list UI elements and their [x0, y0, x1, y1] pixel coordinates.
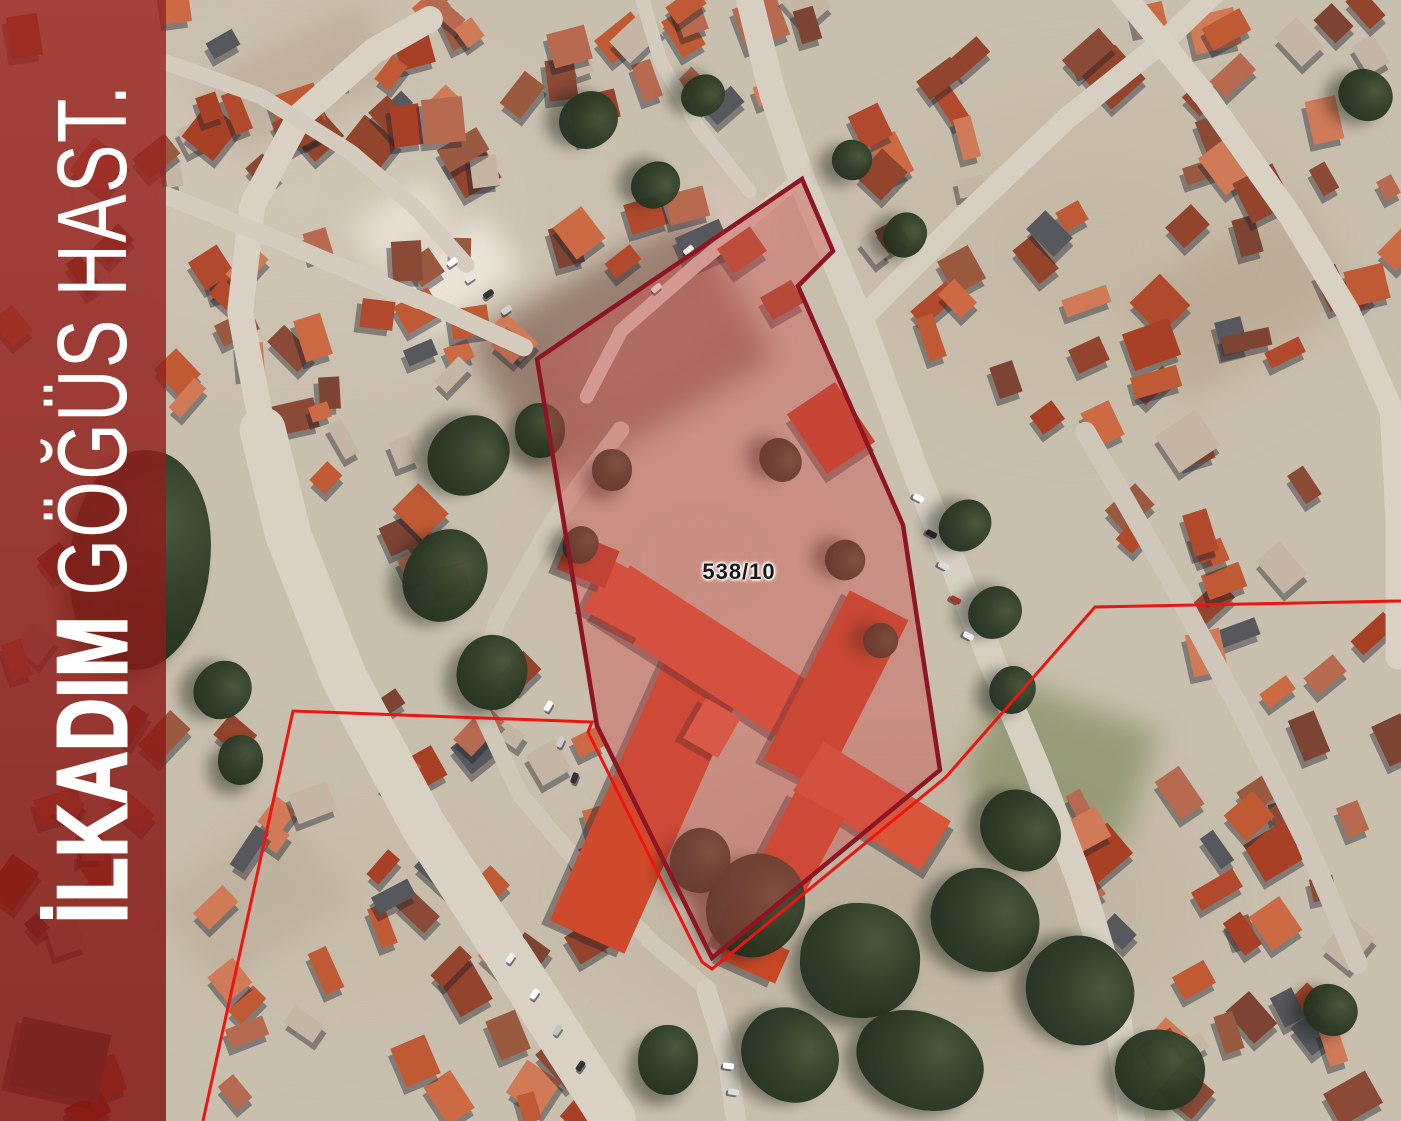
building-roof — [360, 298, 397, 331]
building-roof — [1182, 508, 1219, 556]
tree-canopy — [515, 402, 566, 458]
district-name-label: İLKADIM — [37, 616, 147, 923]
building-roof — [388, 435, 420, 469]
facility-name-label: GÖĞÜS HAST. — [37, 84, 147, 596]
building-roof — [1256, 541, 1308, 594]
building-roof — [391, 240, 423, 281]
road-segment — [1386, 510, 1401, 669]
tree-canopy — [638, 1025, 698, 1095]
building-roof — [1336, 800, 1369, 838]
building-roof — [469, 154, 500, 188]
district-sidebar-title: İLKADIM GÖĞÜS HAST. — [42, 0, 142, 1121]
parcel-number-label: 538/10 — [694, 559, 784, 585]
building-roof — [389, 103, 423, 148]
building-roof — [327, 419, 360, 460]
building-roof — [421, 97, 466, 146]
aerial-satellite-map: 538/10 İLKADIM GÖĞÜS HAST. — [0, 0, 1401, 1121]
building-roof — [1303, 654, 1346, 695]
building-roof — [1323, 1071, 1383, 1121]
building-roof — [309, 461, 343, 495]
building-roof — [1371, 713, 1401, 767]
